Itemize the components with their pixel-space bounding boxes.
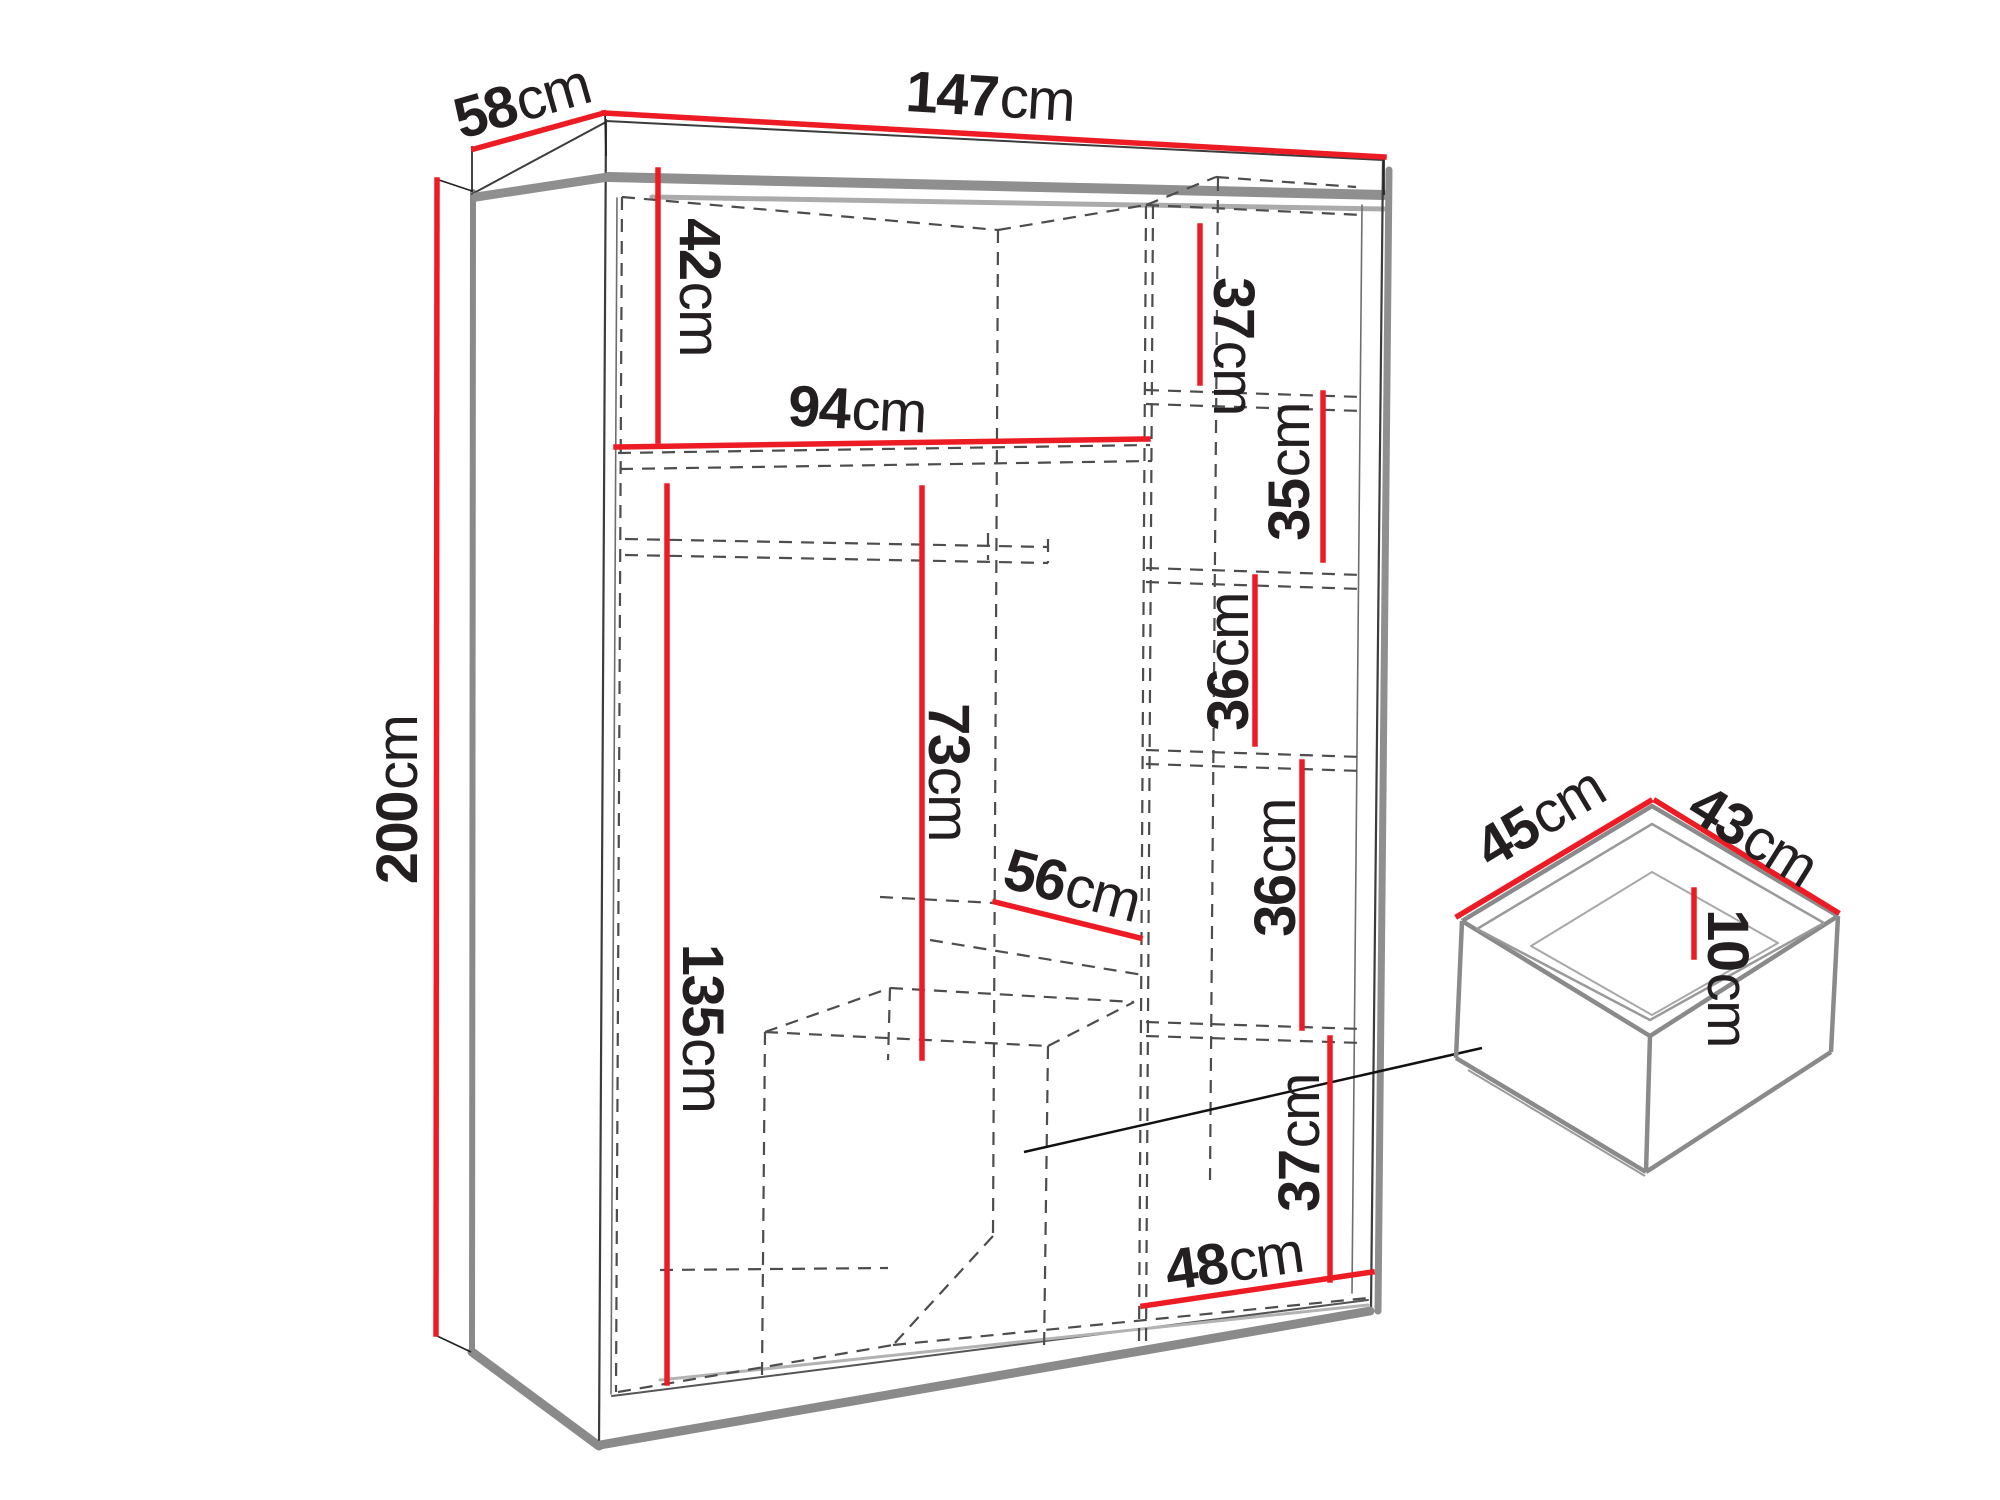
dimension-lines: [436, 113, 1837, 1383]
diagram-drawing: [0, 0, 2000, 1500]
dim-label-width: 147cm: [904, 63, 1076, 131]
dim-label-73: 73cm: [919, 703, 977, 841]
wardrobe-dimension-diagram: 58cm 147cm 200cm 42cm 94cm 37cm 35cm 36c…: [0, 0, 2000, 1500]
dim-label-135: 135cm: [673, 944, 731, 1113]
dim-line-height: [436, 180, 437, 1334]
dim-label-94: 94cm: [787, 377, 928, 442]
dim-label-35: 35cm: [1261, 403, 1319, 541]
dim-label-37-bottom: 37cm: [1271, 1074, 1329, 1212]
dim-label-36a: 36cm: [1200, 593, 1258, 731]
dim-label-42: 42cm: [670, 218, 728, 356]
dim-label-drawer-10: 10cm: [1698, 909, 1756, 1047]
dim-label-37-top: 37cm: [1204, 277, 1262, 415]
dim-label-height: 200cm: [369, 716, 427, 885]
drawer-leader-line: [1024, 1048, 1482, 1152]
dim-label-36b: 36cm: [1247, 799, 1305, 937]
